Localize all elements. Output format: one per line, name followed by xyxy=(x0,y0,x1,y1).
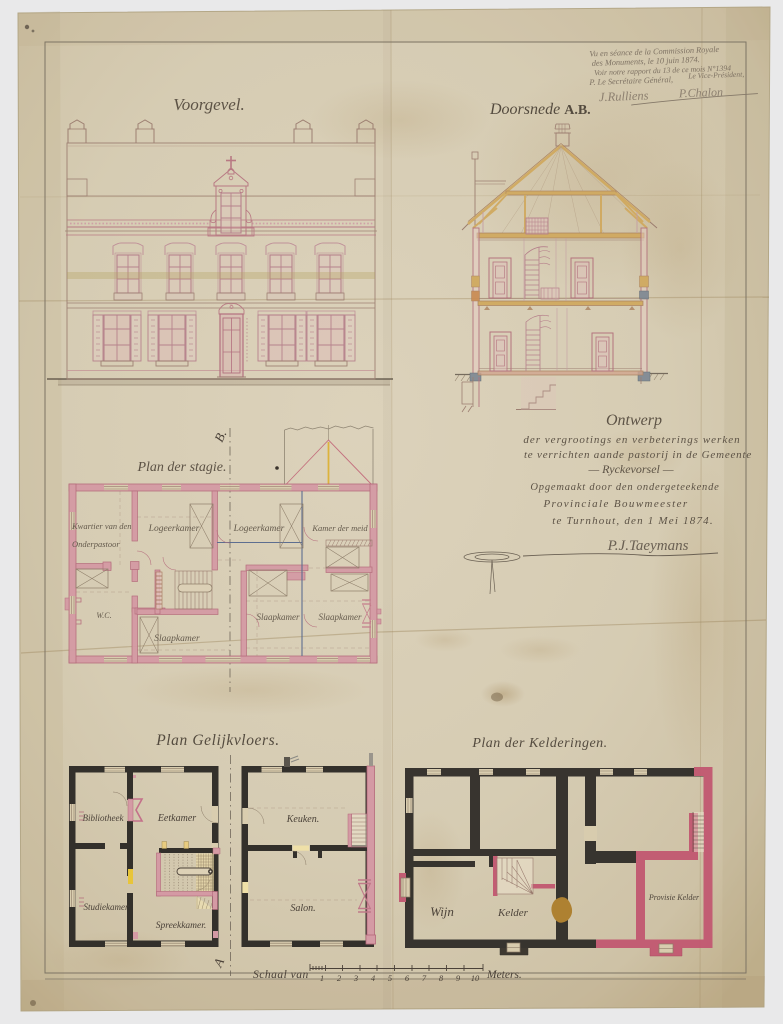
svg-text:— Ryckevorsel —: — Ryckevorsel — xyxy=(587,462,673,476)
svg-text:Eetkamer: Eetkamer xyxy=(157,813,196,824)
svg-text:3: 3 xyxy=(353,973,358,983)
svg-text:te Turnhout, den 1 Mei 1874.: te Turnhout, den 1 Mei 1874. xyxy=(552,515,714,527)
svg-text:Slaapkamer: Slaapkamer xyxy=(257,612,300,622)
svg-text:Kamer der meid: Kamer der meid xyxy=(311,523,368,533)
svg-text:Onderpastoor: Onderpastoor xyxy=(72,539,120,549)
svg-text:Plan Gelijkvloers.: Plan Gelijkvloers. xyxy=(155,732,280,749)
svg-text:Studiekamer: Studiekamer xyxy=(84,902,129,912)
svg-text:Provisie Kelder: Provisie Kelder xyxy=(648,893,700,902)
svg-text:J.Rulliens: J.Rulliens xyxy=(599,88,649,104)
svg-text:Slaapkamer: Slaapkamer xyxy=(319,612,362,622)
svg-text:Opgemaakt door den ondergeteek: Opgemaakt door den ondergeteekende xyxy=(530,482,719,493)
svg-text:Plan der Kelderingen.: Plan der Kelderingen. xyxy=(471,736,607,751)
svg-text:W.C.: W.C. xyxy=(96,611,111,620)
svg-text:5: 5 xyxy=(388,973,392,983)
svg-text:Ontwerp: Ontwerp xyxy=(606,412,662,429)
svg-text:der vergrootings en verbeterin: der vergrootings en verbeterings werken xyxy=(523,434,740,446)
svg-text:Salon.: Salon. xyxy=(290,903,315,914)
svg-text:te verrichten aande pastorij i: te verrichten aande pastorij in de Gemee… xyxy=(524,449,752,461)
svg-text:Slaapkamer: Slaapkamer xyxy=(154,634,200,644)
svg-text:Bibliotheek: Bibliotheek xyxy=(83,813,125,823)
svg-text:Logeerkamer: Logeerkamer xyxy=(148,524,200,534)
svg-text:Kwartier van den: Kwartier van den xyxy=(71,521,132,531)
svg-text:P.J.Taeymans: P.J.Taeymans xyxy=(607,538,689,554)
svg-text:Spreekkamer.: Spreekkamer. xyxy=(156,921,207,931)
svg-text:Schaal van: Schaal van xyxy=(253,969,309,981)
svg-text:Plan der stagie.: Plan der stagie. xyxy=(136,460,226,475)
svg-text:Kelder: Kelder xyxy=(497,907,529,919)
svg-text:Keuken.: Keuken. xyxy=(286,814,320,825)
svg-text:Voorgevel.: Voorgevel. xyxy=(173,95,245,114)
svg-text:Meters.: Meters. xyxy=(486,969,522,981)
svg-text:Doorsnede A.B.: Doorsnede A.B. xyxy=(489,101,591,118)
svg-text:Wijn: Wijn xyxy=(430,904,454,919)
svg-text:1: 1 xyxy=(320,973,324,983)
svg-text:Logeerkamer: Logeerkamer xyxy=(233,524,285,534)
svg-text:Provinciale Bouwmeester: Provinciale Bouwmeester xyxy=(542,498,688,510)
svg-text:10: 10 xyxy=(471,973,480,983)
